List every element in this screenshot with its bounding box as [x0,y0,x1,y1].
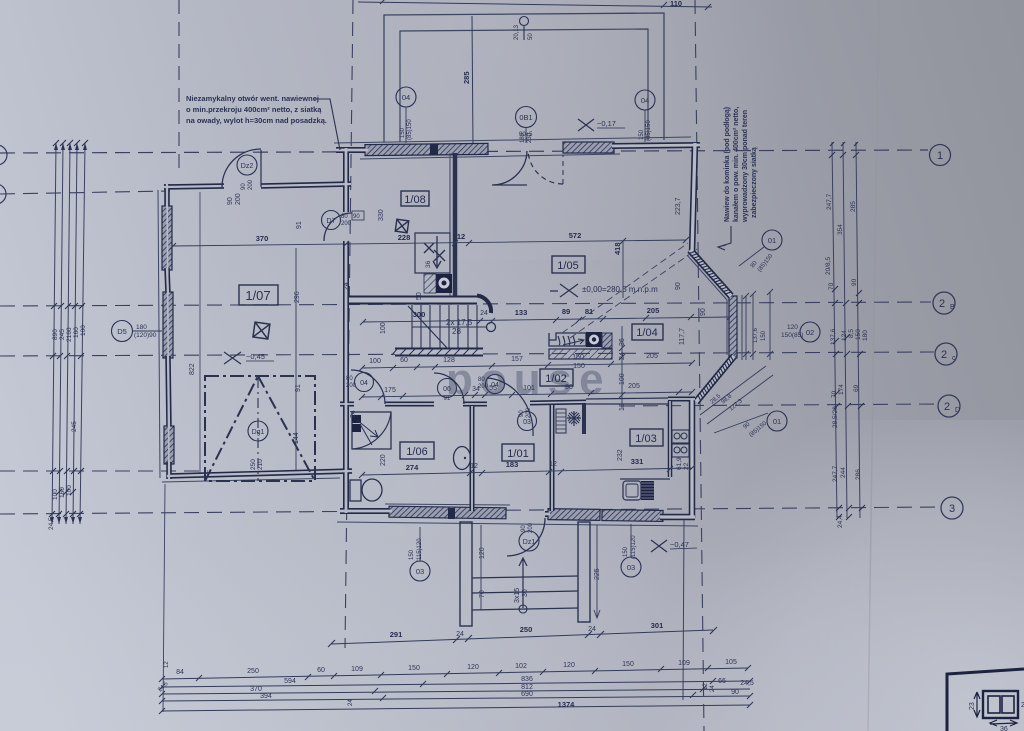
svg-text:100: 100 [380,322,387,334]
svg-text:50: 50 [528,33,534,40]
svg-text:102: 102 [515,663,527,670]
svg-text:22: 22 [683,462,690,470]
svg-text:01: 01 [773,417,781,426]
svg-text:na owady, wylot h=30cm nad pos: na owady, wylot h=30cm nad posadzką. [186,116,327,125]
svg-text:225: 225 [594,568,601,580]
svg-text:24,4: 24,4 [837,515,844,528]
svg-text:70: 70 [479,590,486,598]
svg-text:24,5: 24,5 [48,517,55,530]
svg-text:90: 90 [851,278,858,286]
svg-text:80: 80 [346,376,353,382]
svg-text:150: 150 [409,549,415,560]
svg-text:160: 160 [73,327,80,338]
svg-text:12: 12 [470,463,478,470]
svg-text:(115)120: (115)120 [631,535,637,559]
svg-text:105: 105 [725,659,737,666]
svg-text:24: 24 [343,282,350,290]
svg-text:133: 133 [515,308,528,317]
svg-text:Dg1: Dg1 [252,429,265,436]
svg-text:1/02: 1/02 [545,373,566,385]
svg-text:89: 89 [562,307,570,316]
svg-text:300: 300 [413,310,426,319]
svg-text:144: 144 [293,432,300,444]
svg-text:01: 01 [768,236,776,245]
svg-text:128: 128 [443,357,455,364]
svg-text:174: 174 [838,384,845,395]
svg-text:8,5: 8,5 [848,329,855,338]
svg-text:890: 890 [52,329,59,340]
svg-text:ɒouse: ɒouse [446,355,611,404]
svg-text:247,7: 247,7 [832,465,839,482]
svg-text:200: 200 [341,221,352,227]
svg-text:150: 150 [639,129,645,140]
svg-text:36: 36 [619,338,626,346]
svg-text:354: 354 [837,224,844,235]
svg-text:12: 12 [703,683,709,690]
svg-text:3x15: 3x15 [514,588,521,603]
svg-text:109: 109 [351,666,363,673]
svg-text:250: 250 [247,668,259,675]
svg-text:180: 180 [520,132,526,143]
svg-text:200: 200 [235,193,242,205]
svg-text:55: 55 [489,385,497,392]
svg-text:594: 594 [284,678,296,685]
svg-text:30: 30 [522,589,529,597]
svg-text:1/03: 1/03 [635,433,656,445]
svg-text:150: 150 [400,127,406,138]
svg-text:150: 150 [573,363,585,370]
svg-text:3: 3 [949,503,955,515]
svg-text:Dz1: Dz1 [523,539,536,546]
svg-text:150: 150 [572,354,584,361]
svg-text:60: 60 [400,357,408,364]
svg-text:02: 02 [806,328,814,337]
svg-text:24: 24 [619,352,626,360]
svg-text:2x 17,5: 2x 17,5 [446,318,473,327]
svg-text:205: 205 [628,383,640,390]
svg-text:D7: D7 [327,218,336,225]
svg-text:1/08: 1/08 [404,194,425,206]
svg-text:120: 120 [479,547,486,559]
svg-text:90: 90 [565,384,573,391]
svg-text:160: 160 [59,487,66,498]
svg-text:−0,45: −0,45 [246,352,265,361]
svg-text:175: 175 [384,387,396,394]
svg-text:04: 04 [641,96,649,105]
svg-text:110: 110 [670,0,682,8]
svg-text:03: 03 [523,419,531,426]
svg-text:150(85): 150(85) [781,332,803,339]
svg-text:120: 120 [787,324,798,331]
svg-text:205: 205 [647,306,660,315]
svg-text:150: 150 [622,661,634,668]
svg-text:Nawiew do kominka (pod podłogą: Nawiew do kominka (pod podłogą) [724,107,731,222]
svg-text:91: 91 [296,221,303,229]
svg-text:244: 244 [840,467,847,478]
svg-text:(115)120: (115)120 [417,538,423,562]
svg-text:223,7: 223,7 [675,197,682,215]
svg-text:80: 80 [341,214,348,220]
svg-text:wyprowadzony 30cm ponad teren: wyprowadzony 30cm ponad teren [742,110,749,223]
svg-text:822: 822 [189,363,196,375]
svg-text:230: 230 [527,132,533,143]
svg-text:394: 394 [260,693,272,700]
svg-text:Niezamykalny otwór went. nawie: Niezamykalny otwór went. nawiewnej [186,94,319,103]
svg-text:90: 90 [700,308,707,316]
svg-text:205: 205 [646,353,658,360]
svg-text:120: 120 [563,662,575,669]
svg-text:20,13: 20,13 [514,24,520,40]
svg-text:285: 285 [850,201,857,212]
svg-text:330: 330 [378,209,385,221]
svg-text:24: 24 [710,685,716,692]
svg-text:12: 12 [457,232,465,241]
svg-text:69: 69 [853,384,860,392]
svg-text:90: 90 [731,689,739,696]
svg-text:286: 286 [855,469,862,480]
svg-text:183: 183 [506,460,519,469]
svg-text:291: 291 [390,630,403,639]
svg-text:150: 150 [408,665,420,672]
svg-text:124: 124 [841,330,848,341]
svg-text:274: 274 [406,463,419,472]
svg-text:03: 03 [627,563,635,572]
svg-text:04: 04 [402,93,410,102]
svg-text:150: 150 [623,546,629,557]
svg-text:120: 120 [467,664,479,671]
svg-text:20/8,5: 20/8,5 [825,257,832,275]
svg-text:28,5/20: 28,5/20 [832,406,839,428]
svg-text:250: 250 [250,459,257,470]
svg-text:36: 36 [1000,726,1008,731]
svg-text:(120)90: (120)90 [134,332,157,339]
svg-text:180: 180 [136,324,147,331]
svg-text:200: 200 [346,383,357,389]
svg-text:100: 100 [66,485,73,496]
svg-text:245: 245 [59,329,66,340]
svg-text:0B1: 0B1 [519,113,532,122]
svg-text:2: 2 [939,298,945,310]
svg-text:06: 06 [443,386,451,393]
svg-text:50: 50 [416,292,423,300]
svg-text:370: 370 [256,234,269,243]
svg-text:Dz2: Dz2 [241,163,254,170]
svg-text:60: 60 [317,667,325,674]
svg-text:90: 90 [675,282,682,290]
svg-text:101: 101 [523,385,535,392]
svg-text:836: 836 [521,676,533,683]
svg-text:(85)150: (85)150 [407,119,413,140]
svg-text:150: 150 [855,329,862,340]
svg-text:−0,17: −0,17 [597,119,616,128]
svg-text:23: 23 [969,702,976,710]
svg-text:24: 24 [350,410,357,418]
svg-text:301: 301 [651,621,664,630]
svg-text:220: 220 [380,454,387,466]
svg-text:24: 24 [588,626,596,633]
svg-text:100: 100 [619,373,626,385]
svg-text:81: 81 [585,307,593,316]
svg-text:180: 180 [862,330,869,341]
svg-text:247,7: 247,7 [826,193,833,210]
svg-text:210: 210 [257,459,264,470]
svg-text:100: 100 [80,325,87,336]
svg-text:200: 200 [528,522,534,533]
svg-text:117,7: 117,7 [679,328,686,345]
svg-text:66: 66 [718,678,726,685]
svg-text:28: 28 [452,327,461,336]
svg-text:90: 90 [519,410,525,417]
svg-text:03: 03 [416,567,424,576]
svg-text:296: 296 [294,291,301,303]
svg-text:D5: D5 [117,327,127,336]
svg-text:91: 91 [444,396,451,402]
svg-text:12: 12 [549,461,557,468]
svg-text:245: 245 [71,421,78,432]
svg-text:109: 109 [678,660,690,667]
svg-text:232: 232 [617,449,624,461]
svg-text:2: 2 [944,401,950,413]
svg-text:36: 36 [425,260,432,268]
svg-text:70: 70 [828,282,835,290]
svg-text:kanałem o pow. min. 400cm² net: kanałem o pow. min. 400cm² netto, [733,107,740,222]
svg-text:285: 285 [462,71,471,84]
svg-text:12: 12 [164,661,170,668]
svg-text:(85)150: (85)150 [646,120,652,141]
svg-text:1: 1 [937,150,943,162]
svg-text:572: 572 [569,231,582,240]
svg-text:12: 12 [619,403,626,411]
svg-text:B: B [950,304,955,311]
svg-text:100: 100 [369,358,381,365]
svg-text:370: 370 [250,686,262,693]
svg-text:137,6: 137,6 [753,327,759,343]
svg-text:±0,00=280,5 m n.p.m: ±0,00=280,5 m n.p.m [582,285,658,294]
svg-text:1374: 1374 [558,700,576,709]
svg-text:418: 418 [613,242,622,255]
svg-text:04: 04 [360,380,368,387]
svg-text:250: 250 [520,625,533,634]
svg-text:D: D [955,407,960,414]
svg-text:200: 200 [248,179,254,190]
svg-text:1/04: 1/04 [636,327,657,339]
svg-text:150: 150 [761,330,767,341]
svg-text:812: 812 [521,684,533,691]
svg-text:24,5: 24,5 [740,680,754,687]
svg-text:90: 90 [521,525,527,532]
svg-text:1/07: 1/07 [245,288,270,303]
svg-text:1/05: 1/05 [557,260,578,272]
svg-text:34: 34 [472,386,480,393]
svg-text:331: 331 [631,457,644,466]
svg-text:−0,47: −0,47 [670,540,689,549]
svg-text:100: 100 [52,489,59,500]
svg-text:24: 24 [456,631,464,638]
svg-text:157: 157 [511,356,523,363]
svg-text:c: c [952,355,956,362]
svg-text:1/06: 1/06 [406,446,427,458]
svg-text:70: 70 [831,390,838,398]
svg-text:80: 80 [478,377,485,383]
svg-text:1/01: 1/01 [507,448,528,460]
svg-text:137,6: 137,6 [830,328,837,345]
svg-text:24: 24 [480,310,488,317]
svg-text:90: 90 [241,183,247,190]
svg-text:zabezpieczony siatką: zabezpieczony siatką [751,147,758,218]
svg-text:200: 200 [526,407,532,418]
svg-text:2160: 2160 [66,327,73,342]
svg-text:o min.przekroju 400cm² netto,: o min.przekroju 400cm² netto, z siatką [186,105,322,114]
svg-text:24: 24 [348,699,354,706]
svg-text:90: 90 [353,214,360,220]
svg-text:84: 84 [176,669,184,676]
svg-text:90: 90 [227,197,234,205]
svg-text:2: 2 [941,349,947,361]
svg-text:690: 690 [521,691,533,698]
svg-text:228: 228 [398,233,411,242]
